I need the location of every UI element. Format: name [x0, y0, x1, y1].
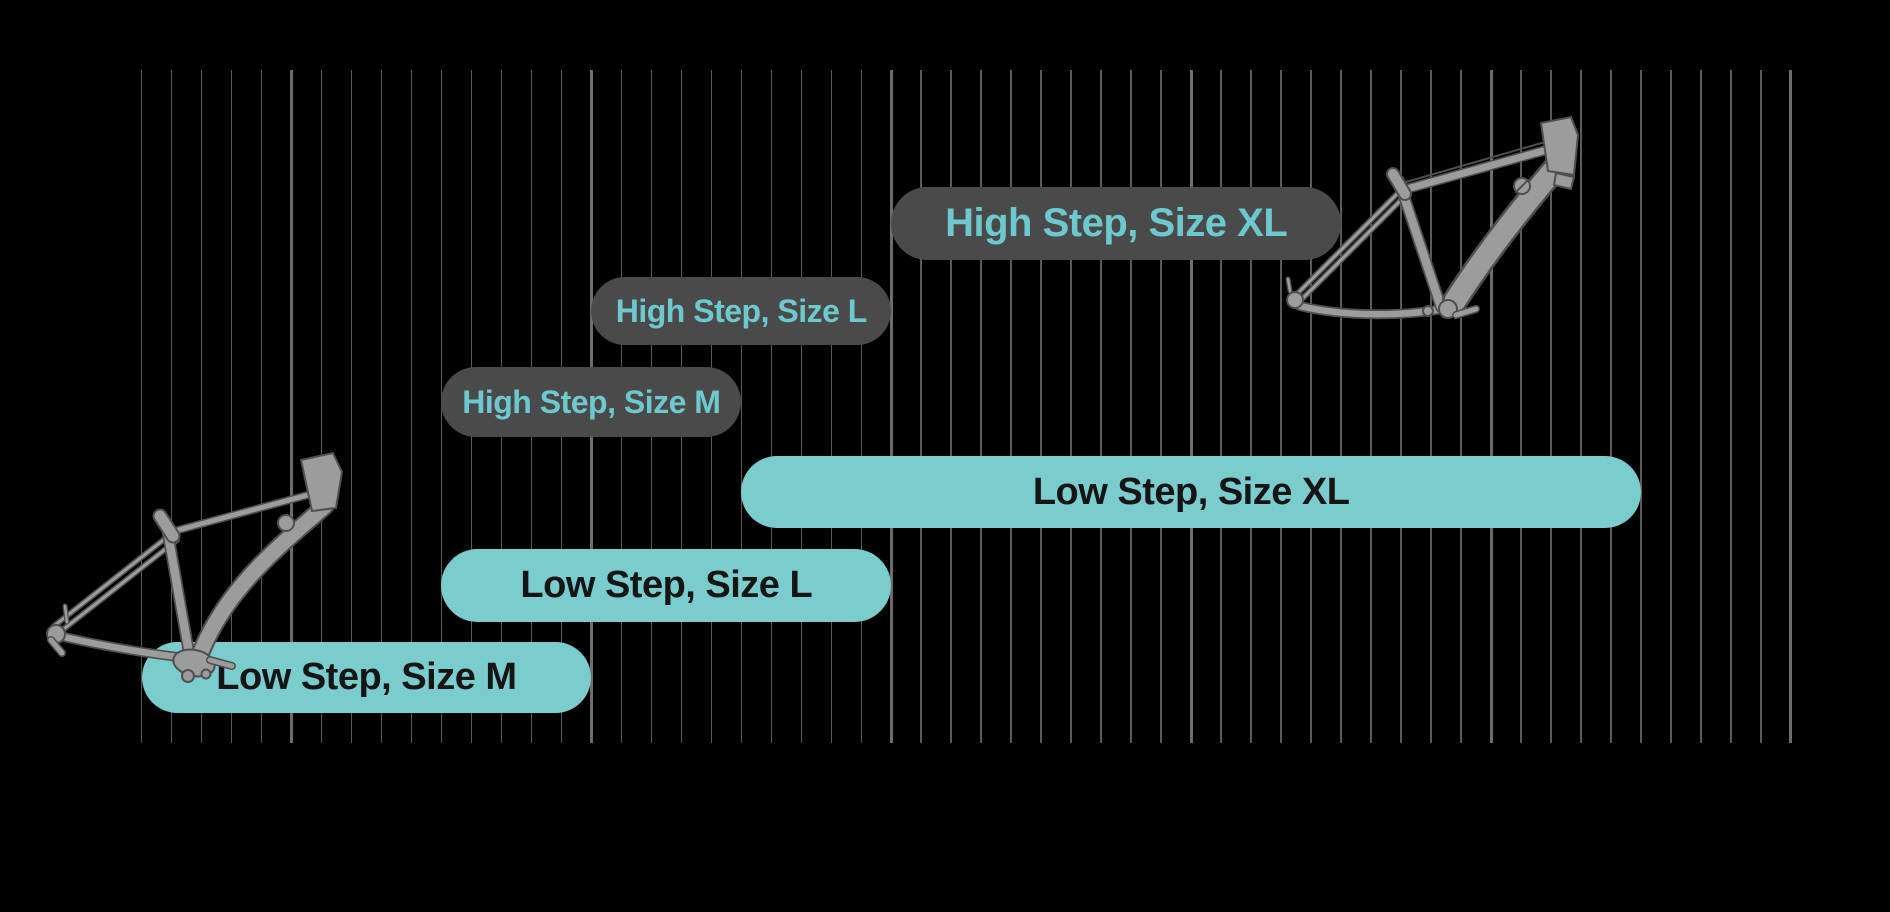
gridline-minor	[771, 70, 773, 743]
gridline-minor	[1610, 70, 1612, 743]
gridline-minor	[1220, 70, 1222, 743]
gridline-minor	[1250, 70, 1252, 743]
gridline-minor	[950, 70, 952, 743]
gridline-minor	[1100, 70, 1102, 743]
gridline-minor	[741, 70, 743, 743]
gridline-minor	[1040, 70, 1042, 743]
gridline-minor	[1760, 70, 1762, 743]
size-range-pill-high-step-size-m: High Step, Size M	[441, 367, 741, 437]
gridline-minor	[1640, 70, 1642, 743]
size-range-pill-low-step-size-l: Low Step, Size L	[441, 549, 891, 622]
low-step-frame-illustration	[20, 450, 350, 700]
size-range-pill-low-step-size-xl: Low Step, Size XL	[741, 456, 1641, 528]
size-chart-canvas: High Step, Size XLHigh Step, Size LHigh …	[0, 0, 1890, 912]
high-step-frame-illustration	[1270, 95, 1590, 335]
size-range-pill-high-step-size-l: High Step, Size L	[591, 277, 891, 345]
gridline-minor	[920, 70, 922, 743]
gridline-major	[1789, 70, 1792, 743]
gridline-minor	[801, 70, 803, 743]
gridline-minor	[1130, 70, 1132, 743]
gridline-minor	[1070, 70, 1072, 743]
gridline-minor	[980, 70, 982, 743]
gridline-minor	[861, 70, 863, 743]
gridline-minor	[1670, 70, 1672, 743]
gridline-minor	[1700, 70, 1702, 743]
gridline-minor	[1010, 70, 1012, 743]
gridline-minor	[831, 70, 833, 743]
gridline-minor	[1160, 70, 1162, 743]
gridline-major	[890, 70, 893, 743]
gridline-minor	[1730, 70, 1732, 743]
gridline-major	[1190, 70, 1193, 743]
